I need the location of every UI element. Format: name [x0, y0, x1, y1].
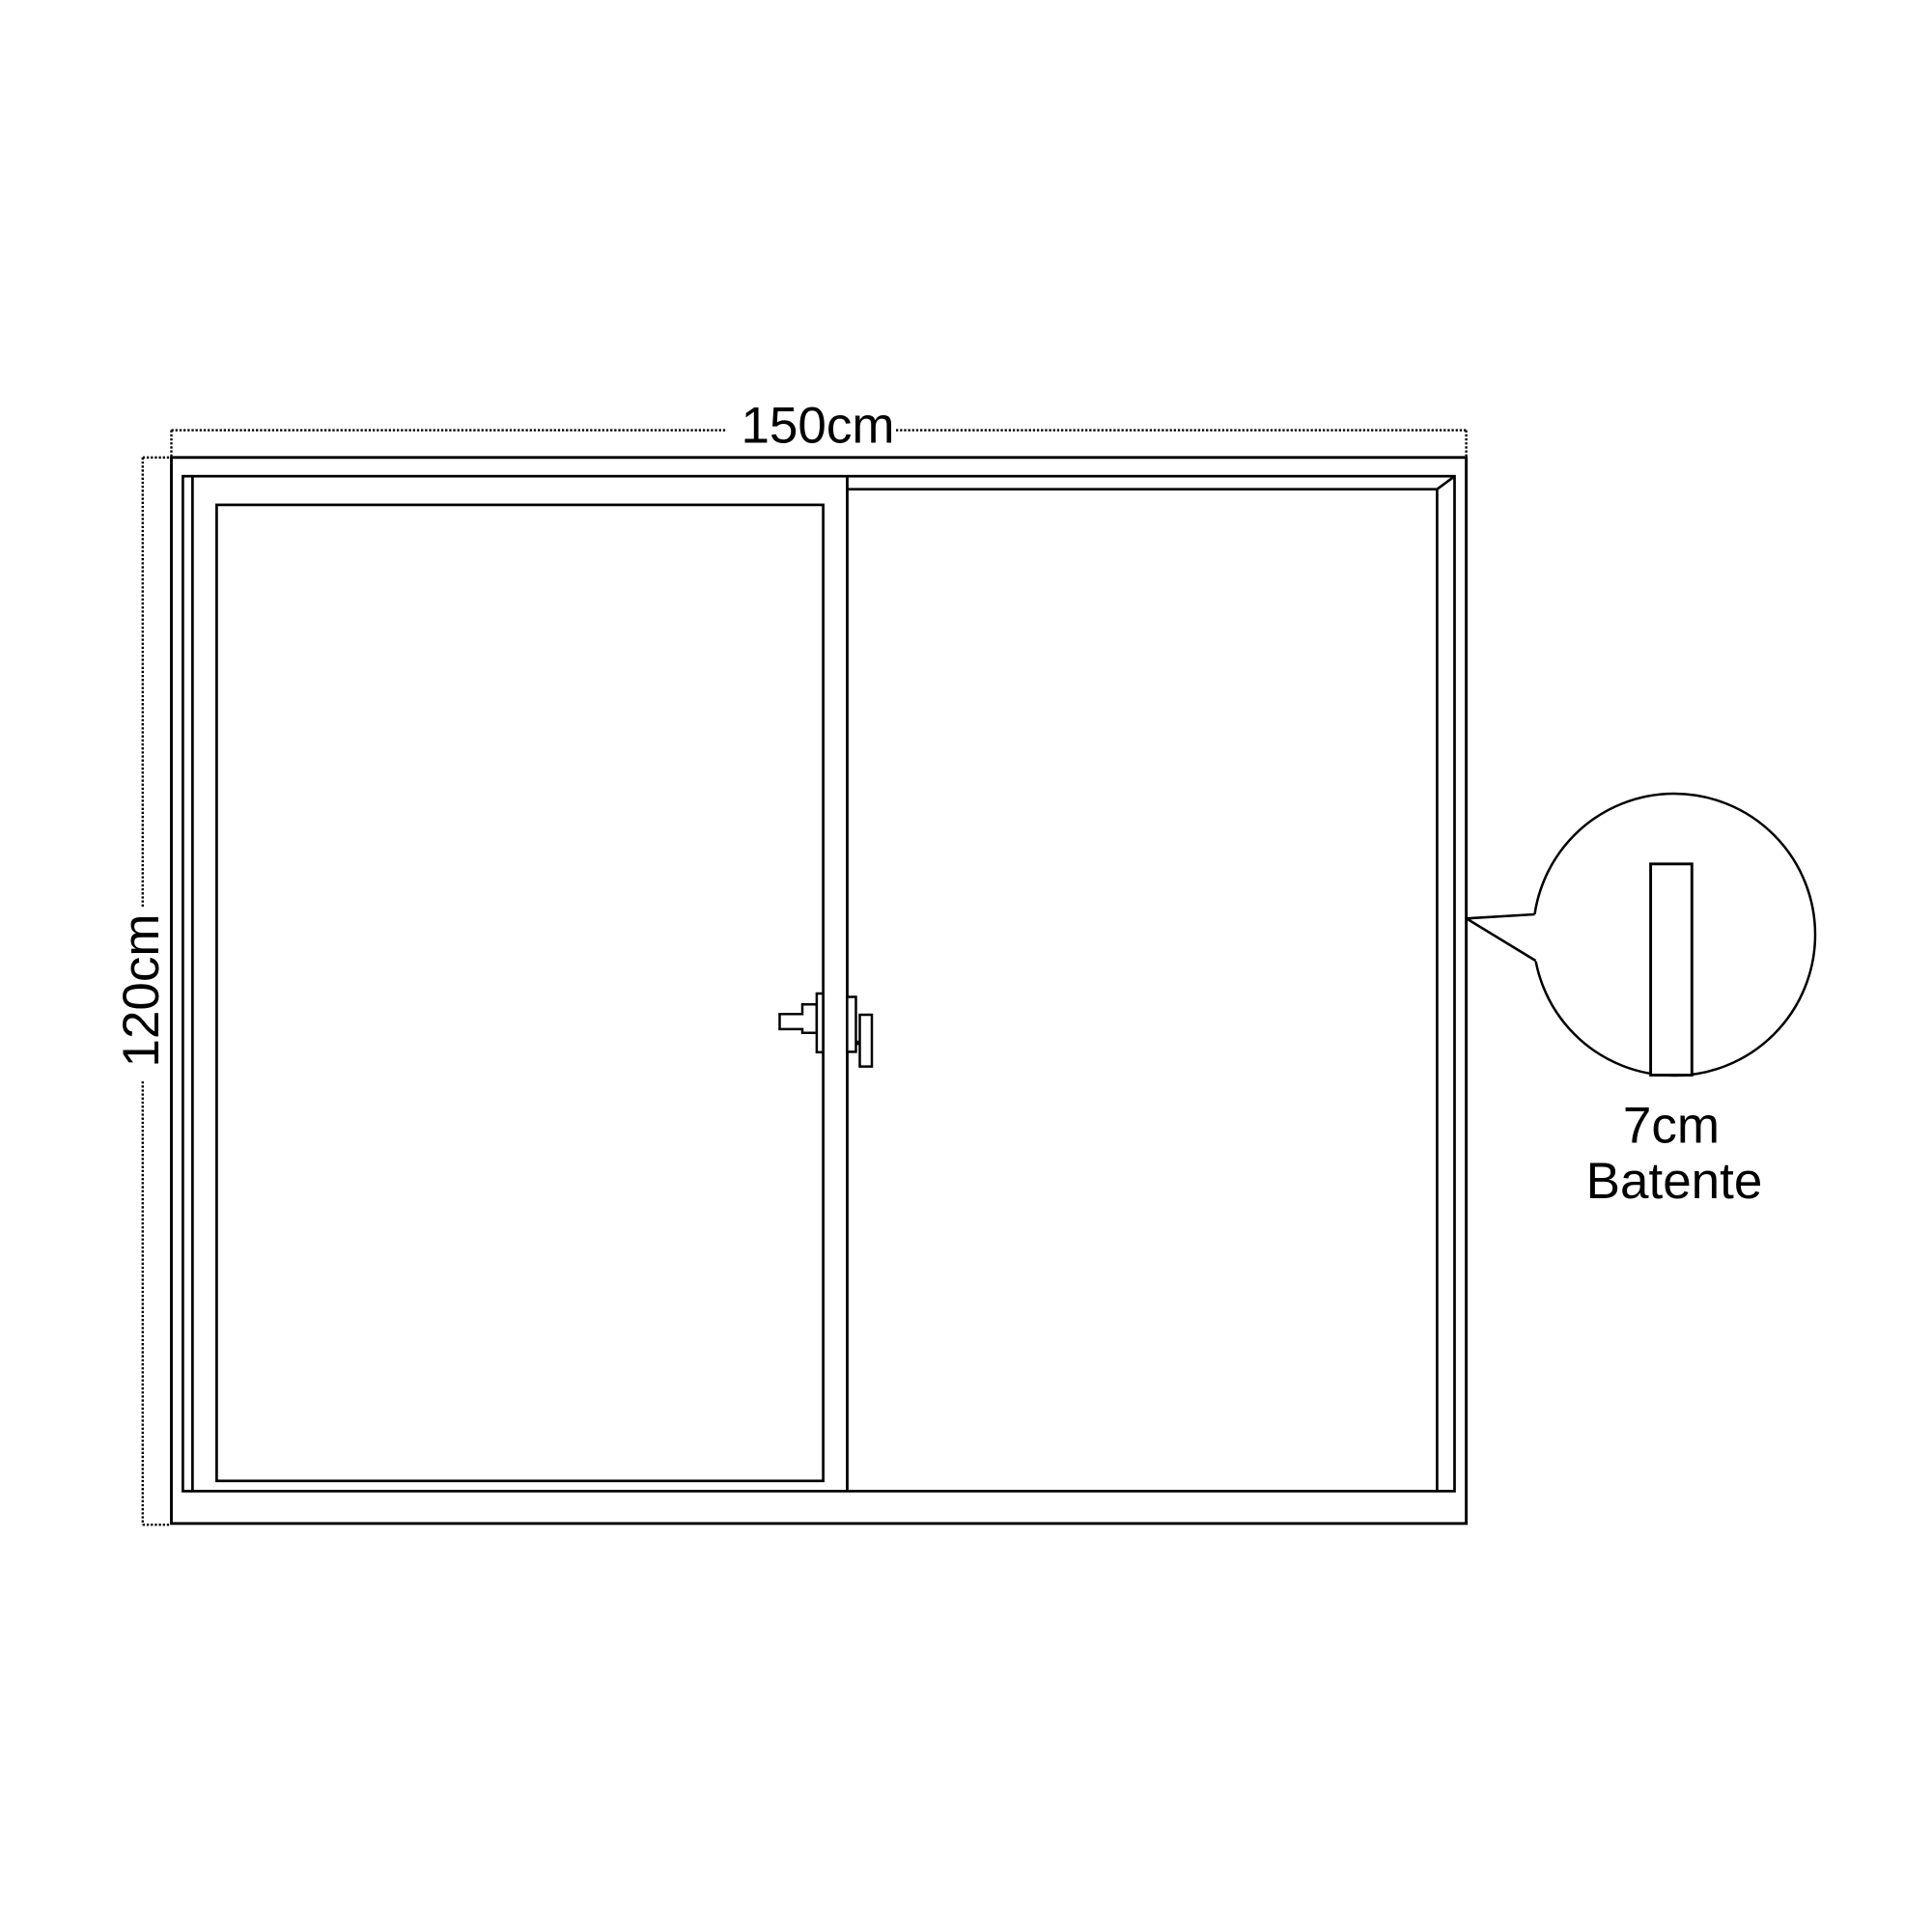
svg-text:7cm: 7cm — [1623, 1097, 1720, 1154]
svg-text:Batente: Batente — [1586, 1153, 1763, 1210]
svg-text:120cm: 120cm — [113, 913, 170, 1067]
svg-text:150cm: 150cm — [741, 398, 894, 455]
